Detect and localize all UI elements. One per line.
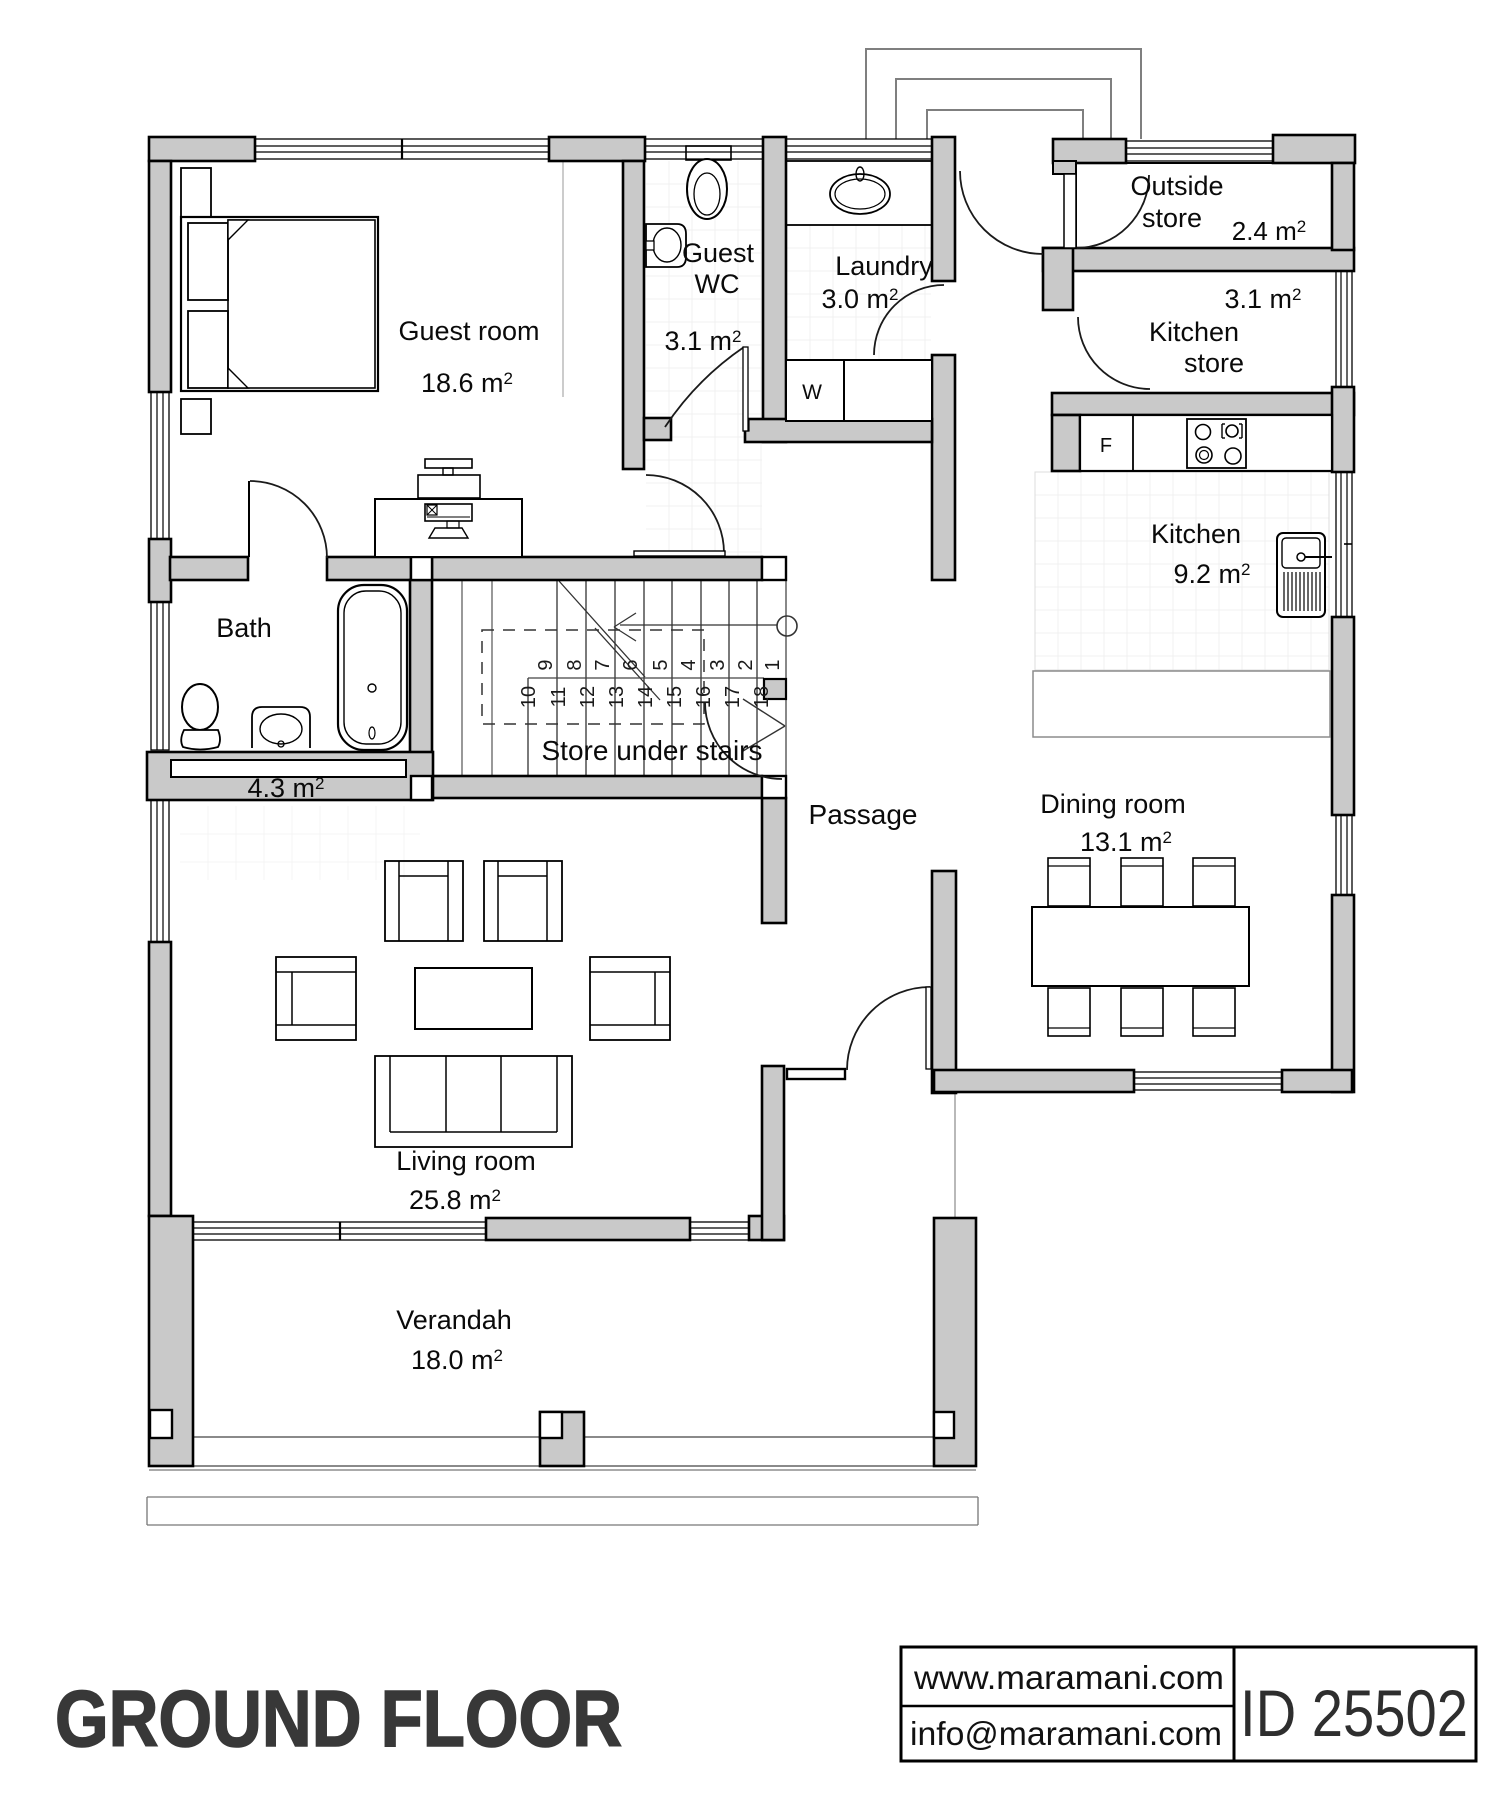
svg-text:ID 25502: ID 25502: [1240, 1676, 1468, 1750]
svg-text:GROUND FLOOR: GROUND FLOOR: [55, 1674, 622, 1763]
svg-text:Dining room: Dining room: [1040, 789, 1186, 819]
svg-text:2.4 m2: 2.4 m2: [1232, 216, 1307, 246]
svg-text:14: 14: [635, 686, 657, 708]
svg-text:Laundry: Laundry: [835, 251, 933, 281]
svg-text:4.3 m2: 4.3 m2: [248, 773, 325, 803]
svg-text:F: F: [1100, 435, 1112, 457]
svg-text:Outside: Outside: [1130, 171, 1223, 201]
svg-text:Bath: Bath: [216, 613, 272, 643]
svg-text:Guest: Guest: [682, 238, 755, 268]
svg-text:store: store: [1184, 348, 1244, 378]
svg-text:www.maramani.com: www.maramani.com: [913, 1659, 1224, 1696]
svg-text:8: 8: [564, 659, 586, 670]
svg-text:15: 15: [664, 686, 686, 708]
svg-text:25.8 m2: 25.8 m2: [409, 1185, 501, 1215]
svg-text:Kitchen: Kitchen: [1151, 519, 1241, 549]
svg-text:13: 13: [606, 686, 628, 708]
svg-text:18.0 m2: 18.0 m2: [411, 1345, 503, 1375]
svg-text:5: 5: [650, 659, 672, 670]
svg-text:1: 1: [762, 659, 784, 670]
svg-text:18: 18: [751, 686, 773, 708]
svg-text:3.0 m2: 3.0 m2: [822, 284, 899, 314]
svg-text:12: 12: [577, 686, 599, 708]
svg-text:7: 7: [592, 659, 614, 670]
svg-text:W: W: [802, 381, 822, 404]
svg-text:9.2 m2: 9.2 m2: [1174, 559, 1251, 589]
svg-text:13.1 m2: 13.1 m2: [1080, 827, 1172, 857]
svg-text:3.1 m2: 3.1 m2: [665, 326, 742, 356]
svg-text:11: 11: [548, 687, 570, 708]
svg-text:17: 17: [722, 686, 744, 708]
svg-text:16: 16: [693, 686, 715, 708]
svg-text:Guest room: Guest room: [398, 316, 539, 346]
svg-text:Verandah: Verandah: [396, 1305, 512, 1335]
svg-text:10: 10: [518, 686, 540, 708]
svg-text:18.6 m2: 18.6 m2: [421, 368, 513, 398]
svg-text:3: 3: [707, 659, 729, 670]
svg-text:6: 6: [620, 659, 642, 670]
svg-text:Passage: Passage: [809, 799, 918, 830]
svg-text:Kitchen: Kitchen: [1149, 317, 1239, 347]
svg-text:2: 2: [735, 659, 757, 670]
svg-text:WC: WC: [695, 269, 740, 299]
svg-text:3.1 m2: 3.1 m2: [1225, 284, 1302, 314]
svg-text:info@maramani.com: info@maramani.com: [910, 1715, 1222, 1752]
svg-text:store: store: [1142, 203, 1202, 233]
svg-text:Living room: Living room: [396, 1146, 536, 1176]
svg-text:9: 9: [535, 659, 557, 670]
svg-text:Store under stairs: Store under stairs: [542, 735, 763, 766]
svg-text:4: 4: [678, 659, 700, 670]
